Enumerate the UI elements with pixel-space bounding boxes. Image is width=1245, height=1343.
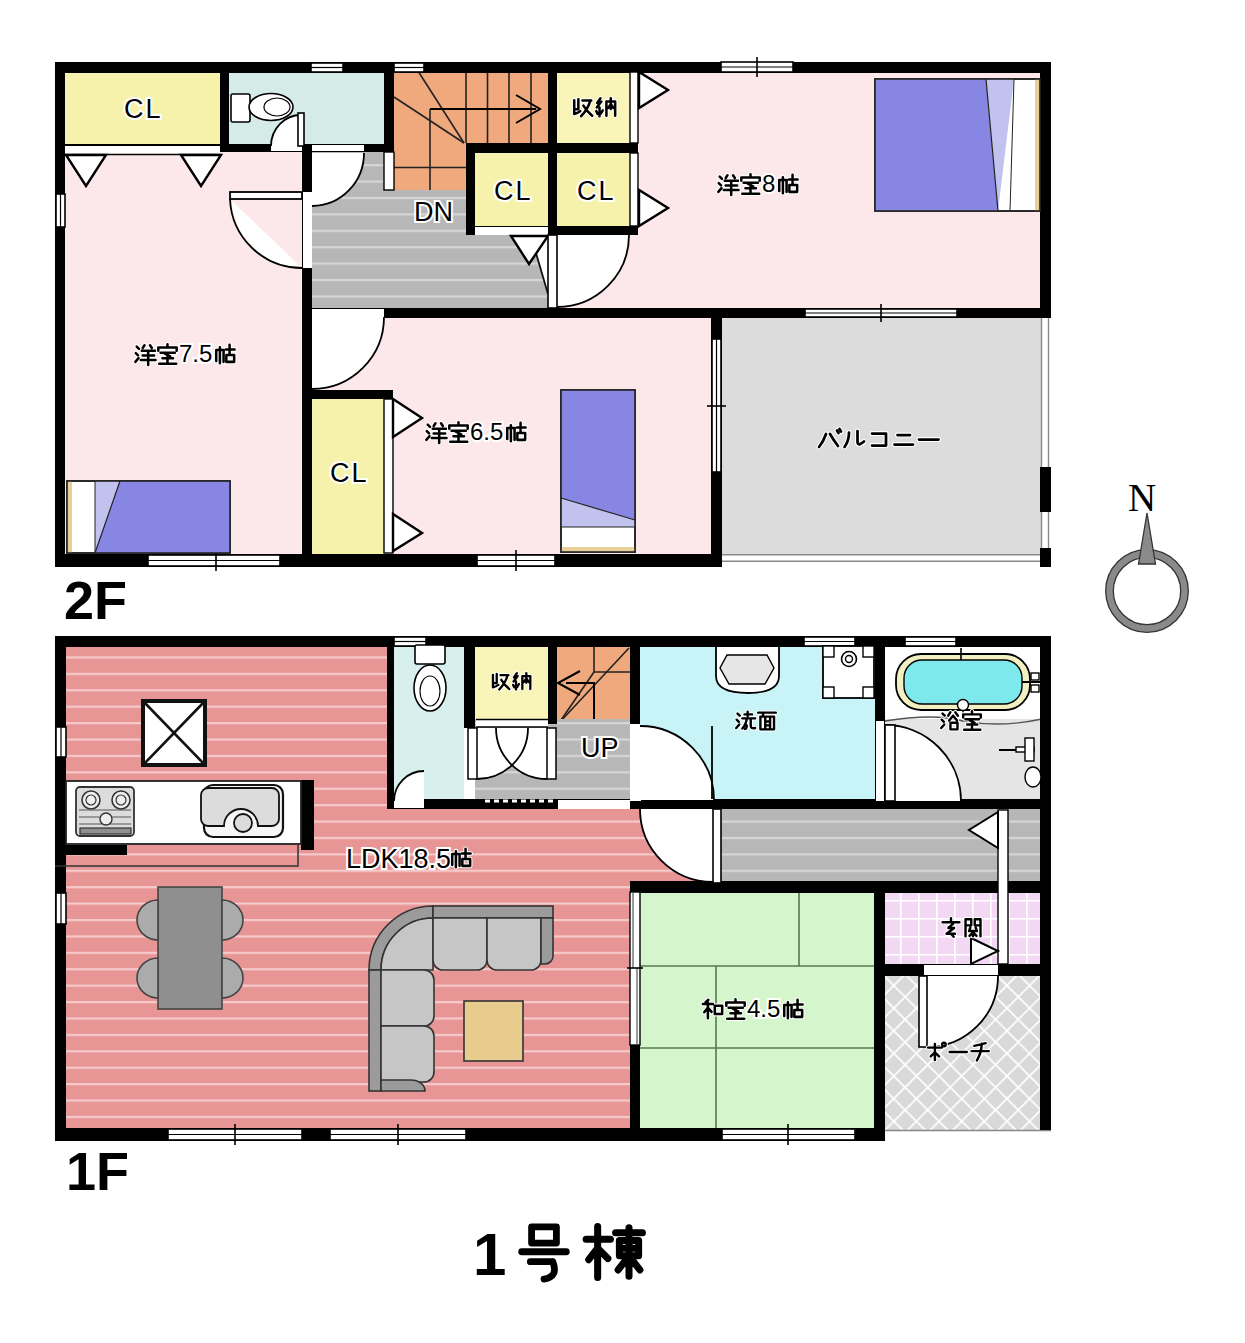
svg-text:8: 8 bbox=[762, 170, 775, 197]
svg-text:4.5: 4.5 bbox=[747, 995, 780, 1022]
svg-text:CL: CL bbox=[330, 458, 369, 488]
svg-text:N: N bbox=[1128, 476, 1156, 519]
svg-text:7.5: 7.5 bbox=[179, 340, 212, 367]
svg-text:2F: 2F bbox=[64, 570, 127, 630]
svg-text:CL: CL bbox=[577, 176, 616, 206]
svg-text:DN: DN bbox=[414, 197, 453, 227]
svg-text:UP: UP bbox=[581, 733, 619, 763]
svg-text:LDK18.5: LDK18.5 bbox=[346, 844, 451, 874]
svg-text:1F: 1F bbox=[66, 1141, 129, 1201]
svg-text:CL: CL bbox=[494, 176, 533, 206]
svg-text:1: 1 bbox=[473, 1221, 506, 1288]
svg-text:6.5: 6.5 bbox=[470, 418, 503, 445]
svg-text:CL: CL bbox=[124, 94, 163, 124]
